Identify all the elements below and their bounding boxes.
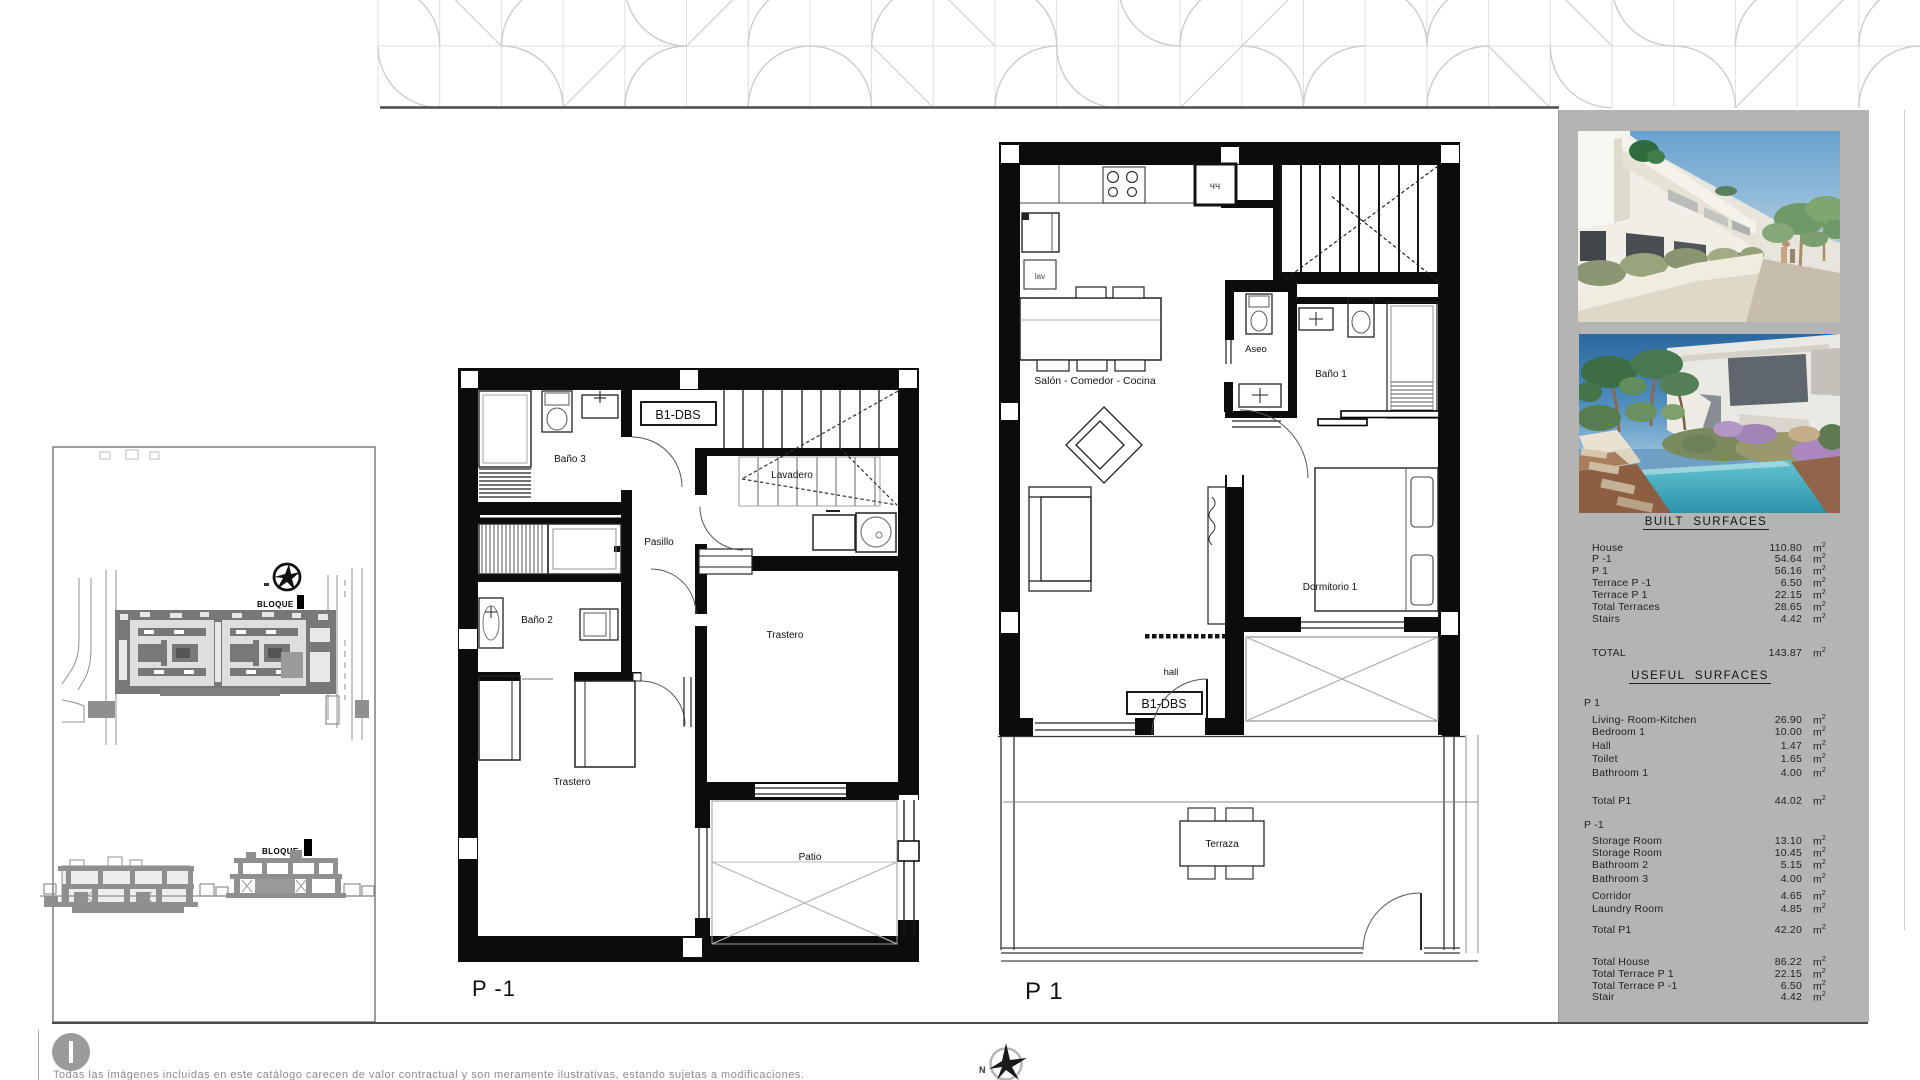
svg-text:lav: lav (1035, 272, 1045, 281)
svg-text:Baño 3: Baño 3 (554, 454, 586, 465)
svg-text:Trastero: Trastero (767, 630, 804, 641)
svg-text:Lavadero: Lavadero (771, 470, 813, 481)
svg-text:P -1: P -1 (472, 976, 516, 1001)
svg-text:Pasillo: Pasillo (644, 537, 674, 548)
svg-text:Baño 1: Baño 1 (1315, 369, 1347, 380)
svg-text:Aseo: Aseo (1245, 344, 1267, 355)
svg-text:Trastero: Trastero (554, 777, 591, 788)
svg-text:Dormitorio 1: Dormitorio 1 (1303, 582, 1358, 593)
svg-text:Salón - Comedor - Cocina: Salón - Comedor - Cocina (1034, 375, 1156, 387)
svg-text:P 1: P 1 (1025, 978, 1064, 1005)
svg-text:Terraza: Terraza (1205, 839, 1239, 850)
svg-text:Baño 2: Baño 2 (521, 615, 553, 626)
svg-text:N: N (979, 1065, 986, 1075)
svg-text:Patio: Patio (799, 852, 822, 863)
svg-text:B1-DBS: B1-DBS (655, 408, 700, 422)
svg-text:BLOQUE: BLOQUE (257, 600, 294, 609)
svg-text:чч: чч (1210, 181, 1220, 192)
svg-text:hall: hall (1164, 667, 1179, 678)
